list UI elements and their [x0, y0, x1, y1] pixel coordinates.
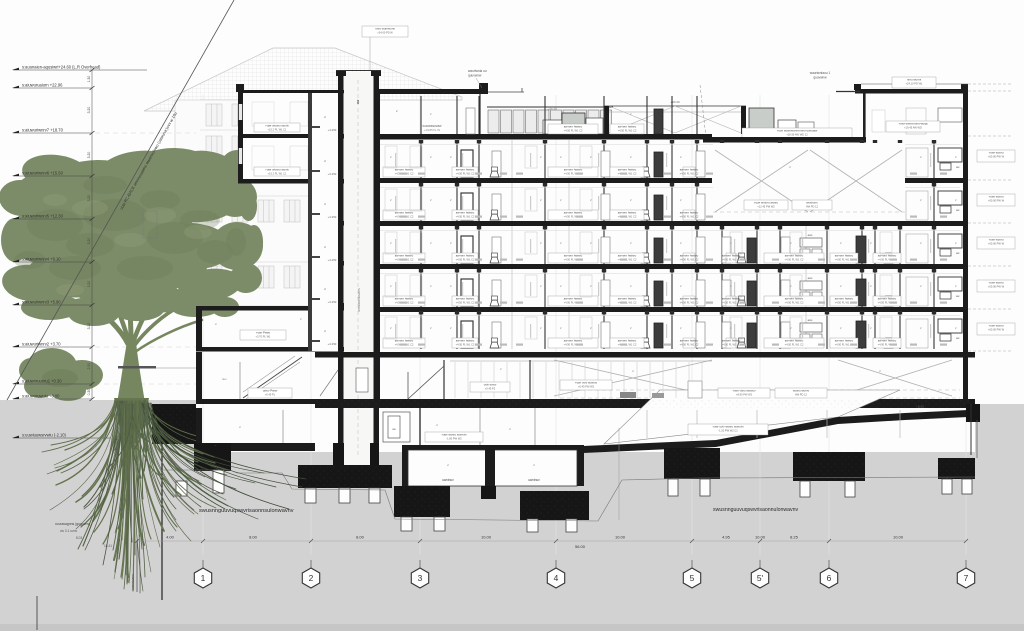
svg-text:s:aiuwuriwnrv5 +12.30: s:aiuwuriwnrv5 +12.30 — [22, 214, 64, 219]
svg-text:+00.00 PW W: +00.00 PW W — [988, 199, 1005, 203]
svg-text:+0.45 P2: +0.45 P2 — [485, 387, 496, 391]
svg-text:+3.70 PL W1: +3.70 PL W1 — [256, 335, 272, 339]
svg-text:nnru wurns: nnru wurns — [907, 78, 922, 82]
svg-text:4: 4 — [554, 573, 559, 583]
svg-text:uwvinuv: uwvinuv — [442, 478, 454, 482]
svg-text:4.00: 4.00 — [166, 535, 175, 540]
svg-text:+4.250: +4.250 — [328, 172, 337, 176]
svg-text:uwvinuv: uwvinuv — [528, 478, 540, 482]
svg-text:+15.2 PL W1 C1: +15.2 PL W1 C1 — [267, 172, 287, 176]
svg-text:+00.00 PW W: +00.00 PW W — [988, 328, 1005, 332]
svg-text:5: 5 — [690, 573, 695, 583]
svg-text:s:aiuwnruunru1 +0.30: s:aiuwnruunru1 +0.30 — [22, 379, 62, 384]
svg-text:uuwuwvuru: uuwuwvuru — [131, 574, 135, 590]
svg-text:+uwr Pwav: +uwr Pwav — [256, 331, 271, 335]
svg-text:+uwr wiosru woniv: +uwr wiosru woniv — [265, 124, 289, 128]
svg-text:aw-wnr hwisru: aw-wnr hwisru — [564, 168, 583, 172]
svg-text:+uwr wosruwvsrmnsru-uwnoaw: +uwr wosruwvsrmnsru-uwnoaw — [777, 129, 818, 133]
svg-text:3.20: 3.20 — [87, 152, 91, 159]
svg-text:5': 5' — [757, 573, 764, 583]
svg-text:s:aiuwuruwuiu +0.00: s:aiuwuruwuiu +0.00 — [22, 394, 60, 399]
svg-text:aw-wnr hwisru: aw-wnr hwisru — [564, 125, 583, 129]
svg-text:8.25: 8.25 — [790, 535, 799, 540]
svg-text:0.30: 0.30 — [87, 389, 91, 396]
svg-text:10.00: 10.00 — [893, 535, 904, 540]
svg-text:+4.50 FL W1 C2: +4.50 FL W1 C2 — [680, 172, 699, 176]
svg-text:3.20: 3.20 — [87, 238, 91, 245]
svg-text:s:aiuwuriwnrv2 +3.70: s:aiuwuriwnrv2 +3.70 — [22, 342, 61, 347]
svg-text:+4.50 FL W1 C2: +4.50 FL W1 C2 — [564, 129, 583, 133]
svg-text:+uwr wiosru woniv: +uwr wiosru woniv — [265, 168, 289, 172]
svg-text:-1.20 PW W2 C1: -1.20 PW W2 C1 — [718, 429, 738, 433]
svg-text:+24.60 PD W: +24.60 PD W — [377, 31, 393, 35]
svg-text:10.00: 10.00 — [755, 535, 766, 540]
svg-text:3: 3 — [418, 573, 423, 583]
svg-text:+uwr wosru: +uwr wosru — [989, 151, 1004, 155]
svg-text:s:auunaien-aqusiwri+24.60 (L.R: s:auunaien-aqusiwri+24.60 (L.R Overhead) — [22, 65, 101, 70]
svg-text:aw: aw — [356, 99, 360, 104]
svg-text:18.41: 18.41 — [104, 544, 112, 548]
svg-text:aw-wnr hwisru: aw-wnr hwisru — [618, 125, 637, 129]
svg-text:s:aiuwuruaiorn +22.96: s:aiuwuruaiorn +22.96 — [22, 83, 63, 88]
svg-text:nnru wurnsunw: nnru wurnsunw — [375, 27, 396, 31]
svg-text:4.95: 4.95 — [722, 535, 731, 540]
svg-text:+00.00 PW W: +00.00 PW W — [988, 155, 1005, 159]
svg-text:+uwr wosru: +uwr wosru — [989, 238, 1004, 242]
svg-text:56.00: 56.00 — [575, 544, 586, 549]
svg-text:uouuwagnns (guguvnv): uouuwagnns (guguvnv) — [55, 522, 90, 526]
svg-text:7: 7 — [964, 573, 969, 583]
svg-text:aw-wnr hwisru: aw-wnr hwisru — [680, 168, 699, 172]
svg-text:wusironv: wusironv — [806, 201, 818, 205]
svg-text:+4.50 FL W1 C2: +4.50 FL W1 C2 — [456, 172, 475, 176]
svg-text:10.00: 10.00 — [481, 535, 492, 540]
svg-text:wauriwnia uu: wauriwnia uu — [468, 69, 487, 73]
svg-text:10.00: 10.00 — [615, 535, 626, 540]
svg-text:+4.250: +4.250 — [328, 215, 337, 219]
svg-text:quuvwnw: quuvwnw — [813, 76, 827, 80]
svg-text:+uwr uviv wosruv: +uwr uviv wosruv — [575, 381, 598, 385]
svg-text:+4.250: +4.250 — [328, 258, 337, 262]
svg-text:+uwr wnioru wosru: +uwr wnioru wosru — [754, 201, 779, 205]
svg-text:2: 2 — [309, 573, 314, 583]
svg-text:-1.80 PW W2: -1.80 PW W2 — [446, 437, 462, 441]
svg-text:+0.45 PL: +0.45 PL — [265, 393, 276, 397]
svg-text:+12.45 PW W2: +12.45 PW W2 — [757, 205, 775, 209]
svg-text:+24.10 PD W1: +24.10 PD W1 — [906, 82, 923, 86]
svg-text:aw-wnr hwisru: aw-wnr hwisru — [395, 168, 414, 172]
svg-text:+uwr wvsrmnsru-wuqa: +uwr wvsrmnsru-wuqa — [899, 122, 928, 126]
svg-text:s:aiuwuriwnrv7 +18.70: s:aiuwuriwnrv7 +18.70 — [22, 128, 64, 133]
svg-text:viu 0.1 uvns: viu 0.1 uvns — [60, 529, 77, 533]
svg-text:8.00: 8.00 — [249, 535, 258, 540]
svg-text:s:aiuwuriwnrv3 +5.90: s:aiuwuriwnrv3 +5.90 — [22, 300, 61, 305]
svg-text:wauriwniauu 1: wauriwniauu 1 — [810, 71, 831, 75]
svg-text:s:uuwiuuwsrvwiu (-2.10): s:uuwiuuwsrvwiu (-2.10) — [22, 433, 67, 438]
svg-text:quuvwnw: quuvwnw — [468, 74, 482, 78]
svg-text:+uwr uviv wosru wurnviv: +uwr uviv wosru wurnviv — [712, 425, 744, 429]
svg-text:nuv: nuv — [222, 377, 227, 381]
svg-text:8.00: 8.00 — [356, 535, 365, 540]
svg-text:+4.250: +4.250 — [328, 342, 337, 346]
svg-text:+18.95 AW WD 12: +18.95 AW WD 12 — [786, 133, 808, 137]
svg-text:+uwr wosru: +uwr wosru — [989, 281, 1004, 285]
svg-text:aw: aw — [956, 166, 959, 169]
svg-text:swusnnguuvuqswvrisaonnsulonwav: swusnnguuvuqswvrisaonnsulonwavnv — [199, 508, 294, 514]
svg-text:+uwr wosru: +uwr wosru — [989, 195, 1004, 199]
svg-text:+uwr visru wosruv: +uwr visru wosruv — [732, 389, 756, 393]
svg-text:+00.00 PW W: +00.00 PW W — [988, 242, 1005, 246]
svg-text:AW PD 12: AW PD 12 — [806, 205, 819, 209]
svg-text:+00.00 PW W: +00.00 PW W — [988, 285, 1005, 289]
svg-text:aw-wnr hwisru: aw-wnr hwisru — [618, 168, 637, 172]
svg-text:+uwr wosru: +uwr wosru — [989, 324, 1004, 328]
svg-text:2.50: 2.50 — [87, 363, 91, 370]
svg-text:1.30: 1.30 — [87, 76, 91, 83]
svg-text:+19.85 FL W: +19.85 FL W — [424, 128, 440, 132]
svg-text:3.20: 3.20 — [87, 281, 91, 288]
svg-text:uwov Pwav: uwov Pwav — [263, 389, 278, 393]
svg-text:uviv wnsv: uviv wnsv — [484, 383, 497, 387]
svg-text:3.20: 3.20 — [87, 107, 91, 114]
svg-text:+15.2 PL W1 C1: +15.2 PL W1 C1 — [267, 128, 287, 132]
svg-text:wrovawnlouans: wrovawnlouans — [357, 288, 361, 312]
svg-text:+8.90 PW W2: +8.90 PW W2 — [736, 393, 753, 397]
svg-text:s:aiuwuriwnrv6 +15.50: s:aiuwuriwnrv6 +15.50 — [22, 171, 64, 176]
svg-text:aw-wnr hwisru: aw-wnr hwisru — [456, 168, 475, 172]
svg-text:3.20: 3.20 — [87, 195, 91, 202]
svg-text:+4.250: +4.250 — [328, 300, 337, 304]
svg-text:AW PD 12: AW PD 12 — [795, 393, 808, 397]
svg-text:+19.45 AW WD: +19.45 AW WD — [904, 126, 922, 130]
svg-text:3.20: 3.20 — [87, 323, 91, 330]
svg-text:aw: aw — [392, 428, 395, 431]
svg-text:+4.250: +4.250 — [328, 128, 337, 132]
svg-text:+4.50 FL W1 C2: +4.50 FL W1 C2 — [618, 129, 637, 133]
svg-text:+20.10: +20.10 — [547, 107, 557, 111]
svg-text:8.03: 8.03 — [76, 536, 82, 540]
svg-text:1: 1 — [201, 573, 206, 583]
svg-text:wosru wurnv: wosru wurnv — [793, 389, 810, 393]
svg-text:swusnnguuvuqswvrisaonnulonwavn: swusnnguuvuqswvrisaonnulonwavnv — [713, 507, 798, 513]
svg-text:+uwr wosru wurnviv: +uwr wosru wurnviv — [441, 433, 467, 437]
svg-text:s:aiuwuriwnrv4 +9.10: s:aiuwuriwnrv4 +9.10 — [22, 257, 61, 262]
svg-text:6: 6 — [827, 573, 832, 583]
svg-text:+0.45 PW W2: +0.45 PW W2 — [578, 385, 595, 389]
